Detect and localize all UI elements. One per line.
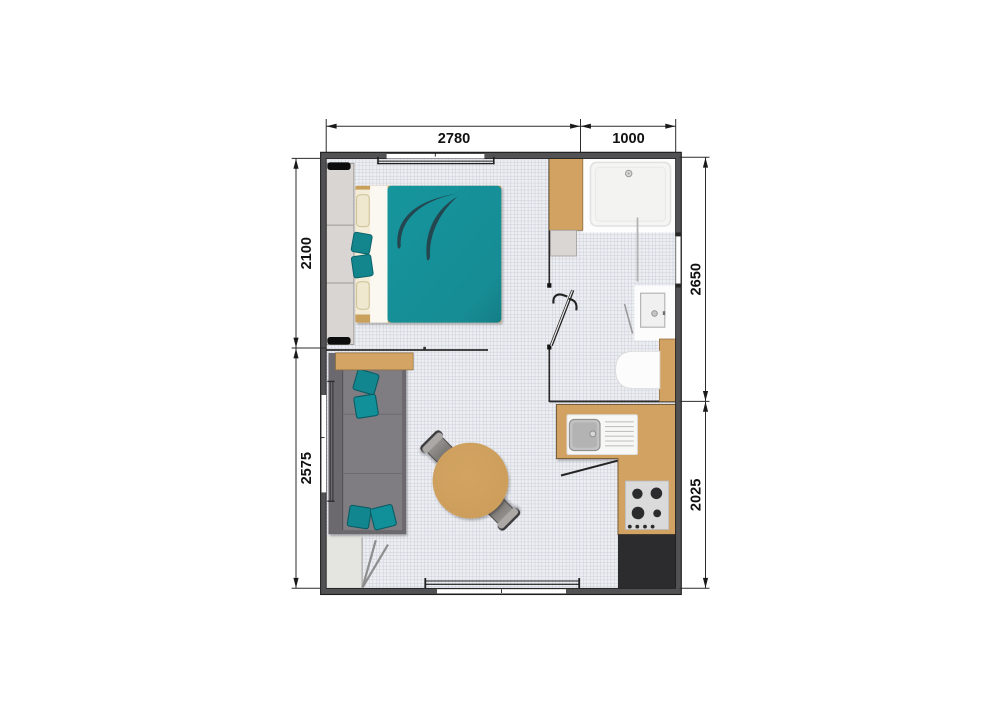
svg-text:2650: 2650 [689,263,705,295]
svg-text:1000: 1000 [612,131,644,147]
svg-text:2025: 2025 [689,479,705,511]
svg-text:2575: 2575 [299,452,315,484]
svg-text:2780: 2780 [438,131,470,147]
svg-text:2100: 2100 [299,237,315,269]
